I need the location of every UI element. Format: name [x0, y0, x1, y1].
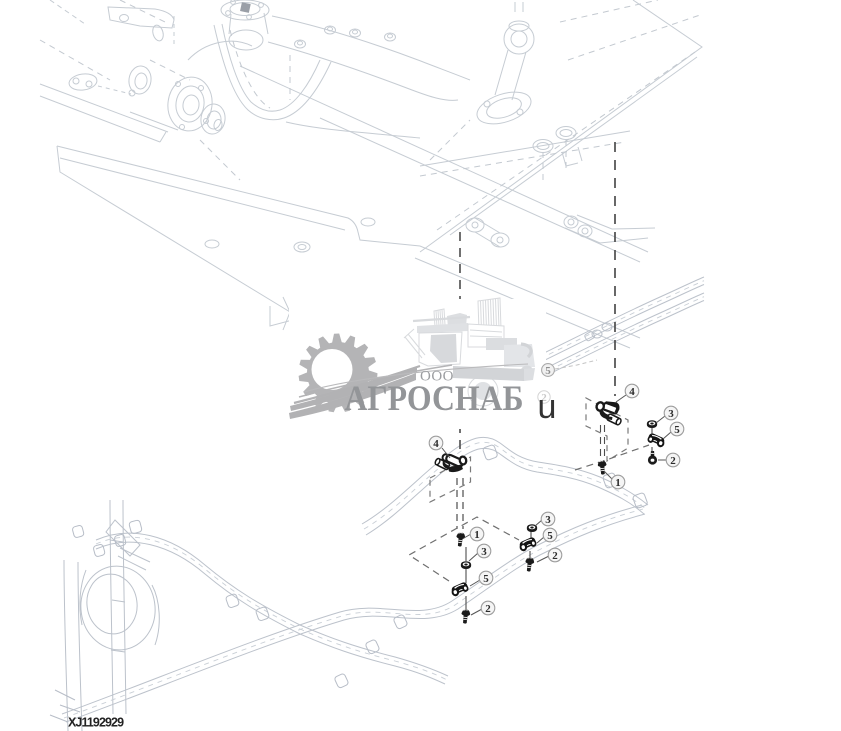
svg-text:3: 3 [668, 408, 674, 420]
svg-text:3: 3 [481, 546, 487, 558]
svg-text:5: 5 [674, 424, 680, 436]
svg-text:2: 2 [552, 550, 558, 562]
svg-text:1: 1 [615, 477, 621, 489]
svg-text:2: 2 [670, 455, 676, 467]
svg-text:5: 5 [483, 573, 489, 585]
svg-text:3: 3 [545, 514, 551, 526]
svg-text:1: 1 [474, 529, 480, 541]
svg-text:5: 5 [545, 365, 551, 377]
svg-text:2: 2 [485, 603, 491, 615]
svg-text:4: 4 [433, 438, 439, 450]
svg-text:5: 5 [547, 530, 553, 542]
svg-text:u: u [538, 388, 557, 426]
svg-text:4: 4 [629, 386, 635, 398]
svg-text:АГРОСНАБ: АГРОСНАБ [345, 378, 524, 418]
svg-text:XJ1192929: XJ1192929 [68, 716, 124, 730]
